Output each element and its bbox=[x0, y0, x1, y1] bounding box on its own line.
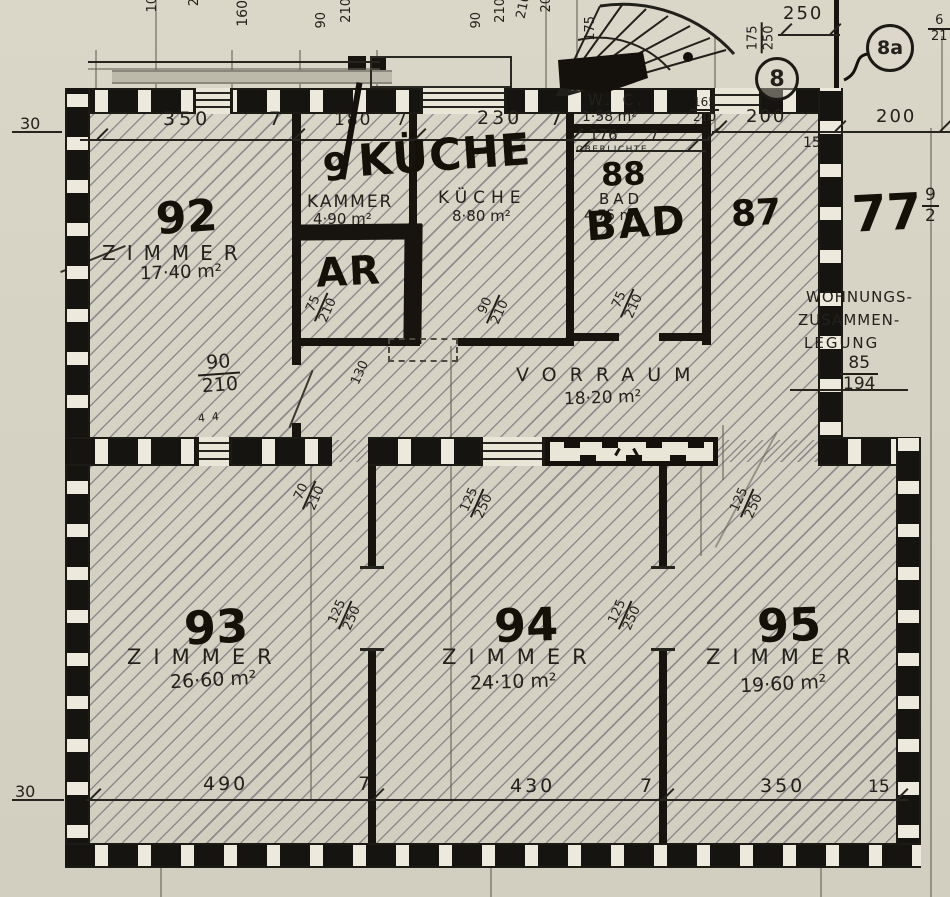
room-area-z94: 24·10 m² bbox=[470, 671, 557, 694]
dim-edge-210: 210 bbox=[494, 0, 508, 23]
stair-ref-circle-8: 8 bbox=[755, 57, 799, 101]
marker-bad: BAD bbox=[585, 201, 688, 248]
opening-w: 165 bbox=[690, 96, 719, 111]
dim-edge-210: 210 bbox=[515, 0, 534, 20]
room-number-95: 95 bbox=[756, 601, 822, 649]
room-label-vorraum: VORRAUM bbox=[516, 366, 704, 386]
circle-8a-label: 8a bbox=[877, 37, 903, 59]
circle-8-label: 8 bbox=[769, 67, 784, 92]
dim-430: 430 bbox=[510, 777, 555, 797]
opening-size-stiege: 175250 bbox=[747, 1, 778, 53]
dim-edge-90: 90 bbox=[315, 12, 329, 29]
wall-middle bbox=[818, 437, 896, 466]
marker-77: 77 bbox=[851, 186, 923, 240]
dim-15: 15 bbox=[868, 779, 890, 797]
dim-176: 176 bbox=[589, 128, 618, 144]
dim-350: 350 bbox=[760, 777, 805, 797]
wall-middle bbox=[232, 437, 332, 466]
marker-87: 87 bbox=[730, 195, 782, 234]
opening-h: 210 bbox=[198, 373, 242, 397]
door-jamb bbox=[360, 648, 384, 651]
dim-7: 7 bbox=[358, 775, 370, 795]
dim-7: 7 bbox=[269, 110, 281, 130]
wall-bad-right bbox=[702, 114, 711, 345]
fraction-bottom: 194 bbox=[840, 375, 878, 394]
opening-h: 210 bbox=[690, 111, 719, 124]
wall-z92-right bbox=[292, 423, 301, 437]
door-jamb bbox=[651, 566, 675, 569]
dim-7: 7 bbox=[649, 129, 659, 145]
note-wohnungs: WOHNUNGS- bbox=[806, 290, 913, 306]
wall-kueche-bottom bbox=[458, 338, 574, 346]
fraction-6-21: 621 bbox=[928, 14, 950, 45]
wall-kueche-right bbox=[566, 114, 574, 341]
window-sill-box bbox=[370, 56, 512, 88]
room-number-92: 92 bbox=[155, 194, 219, 242]
dim-200: 200 bbox=[746, 108, 786, 127]
pencil-line bbox=[490, 868, 492, 897]
wall-bad-bottom bbox=[659, 333, 711, 341]
door-jamb bbox=[360, 566, 384, 569]
stair-ref-circle-8a: 8a bbox=[866, 24, 914, 72]
pencil-line bbox=[941, 36, 943, 131]
wall-left bbox=[65, 88, 90, 868]
pencil-line bbox=[930, 128, 932, 897]
opening-size-entry: 165210 bbox=[690, 96, 719, 125]
dim-edge-10: 10 bbox=[146, 0, 160, 13]
room-area-vorraum: 18·20 m² bbox=[564, 389, 642, 410]
stair-winder bbox=[548, 0, 748, 96]
opening-size-z92-door: 90210 bbox=[197, 351, 242, 398]
fraction-bottom: 2 bbox=[922, 207, 939, 226]
room-label-z93: ZIMMER bbox=[127, 646, 284, 668]
room-label-wc: W. C. bbox=[588, 93, 646, 109]
dim-line-right bbox=[712, 131, 950, 133]
room-area-wc: 1·58 m² bbox=[582, 110, 637, 125]
pencil-line bbox=[722, 425, 724, 480]
pencil-line bbox=[545, 0, 547, 88]
fraction-top: 6 bbox=[928, 14, 950, 30]
room-label-z95: ZIMMER bbox=[706, 646, 863, 668]
outer-wall-band bbox=[112, 70, 392, 84]
room-number-88: 88 bbox=[600, 157, 646, 191]
wall-z93-z94 bbox=[368, 466, 376, 568]
dim-stair-175: 175 bbox=[584, 16, 598, 41]
pencil-line bbox=[700, 466, 702, 556]
note-legung: LEGUNG bbox=[804, 336, 879, 352]
wall-middle bbox=[65, 437, 196, 466]
pencil-line bbox=[310, 466, 312, 800]
dim-30-bottom: 30 bbox=[15, 784, 35, 801]
pencil-line bbox=[820, 868, 822, 897]
room-area-z92: 17·40 m² bbox=[140, 263, 223, 285]
marker-ar: AR bbox=[315, 250, 383, 293]
wall-right-lower bbox=[896, 437, 921, 868]
dim-line-bottom bbox=[86, 799, 908, 801]
wall-kammer-right-marker bbox=[403, 224, 422, 344]
note-4-4: 4 4 bbox=[197, 411, 219, 425]
dim-edge-90: 90 bbox=[470, 12, 484, 29]
dim-200: 200 bbox=[876, 108, 916, 127]
dim-250: 250 bbox=[783, 5, 823, 24]
door-swing-dashed bbox=[388, 338, 458, 362]
fraction-9-2: 92 bbox=[922, 186, 939, 225]
window-opening bbox=[196, 437, 232, 466]
pencil-line bbox=[160, 868, 162, 897]
breakthrough-opening bbox=[545, 437, 718, 466]
wall-bottom bbox=[65, 843, 921, 868]
wall-z93-z94 bbox=[368, 650, 376, 843]
door-jamb bbox=[651, 648, 675, 651]
opening-w: 175 bbox=[747, 22, 763, 53]
dim-15: 15 bbox=[803, 136, 821, 151]
room-label-kueche: KÜCHE bbox=[438, 190, 527, 208]
dim-edge-210: 210 bbox=[340, 0, 354, 23]
dim-edge-2: 2 bbox=[188, 0, 202, 6]
opening-h: 250 bbox=[763, 22, 777, 53]
floor-plan-canvas: 8 8a 350 7 180 7 230 7 176 7 200 200 15 … bbox=[0, 0, 950, 897]
room-area-kammer: 4·90 m² bbox=[313, 212, 372, 228]
pencil-line bbox=[450, 346, 452, 800]
room-label-z92: ZIMMER bbox=[102, 243, 249, 264]
wall-z94-z95 bbox=[659, 650, 667, 843]
wall-right-upper bbox=[818, 88, 843, 465]
dim-7: 7 bbox=[396, 112, 407, 130]
dim-line-top-outside2 bbox=[88, 68, 380, 70]
wall-bad-bottom bbox=[574, 333, 619, 341]
fraction-top: 85 bbox=[840, 354, 878, 375]
room-area-kueche: 8·80 m² bbox=[452, 209, 511, 225]
room-label-z94: ZIMMER bbox=[442, 646, 599, 668]
fraction-bottom: 21 bbox=[928, 30, 950, 44]
note-zusammen: ZUSAMMEN- bbox=[798, 313, 900, 329]
dim-490: 490 bbox=[203, 775, 248, 795]
wall-middle bbox=[368, 437, 480, 466]
window-opening bbox=[480, 437, 545, 466]
dim-7: 7 bbox=[640, 777, 652, 797]
dim-30-top: 30 bbox=[20, 116, 40, 133]
dim-edge-20: 20 bbox=[540, 0, 554, 13]
dim-350: 350 bbox=[163, 110, 211, 130]
dim-7: 7 bbox=[550, 110, 562, 130]
fraction-85-194: 85194 bbox=[840, 354, 878, 393]
fraction-top: 9 bbox=[922, 186, 939, 207]
dim-line-top-outside bbox=[88, 61, 380, 63]
room-number-94: 94 bbox=[493, 601, 559, 649]
wall-z94-z95 bbox=[659, 466, 667, 568]
dim-edge-160: 160 bbox=[236, 0, 251, 27]
marker-kueche: KÜCHE bbox=[357, 128, 533, 184]
